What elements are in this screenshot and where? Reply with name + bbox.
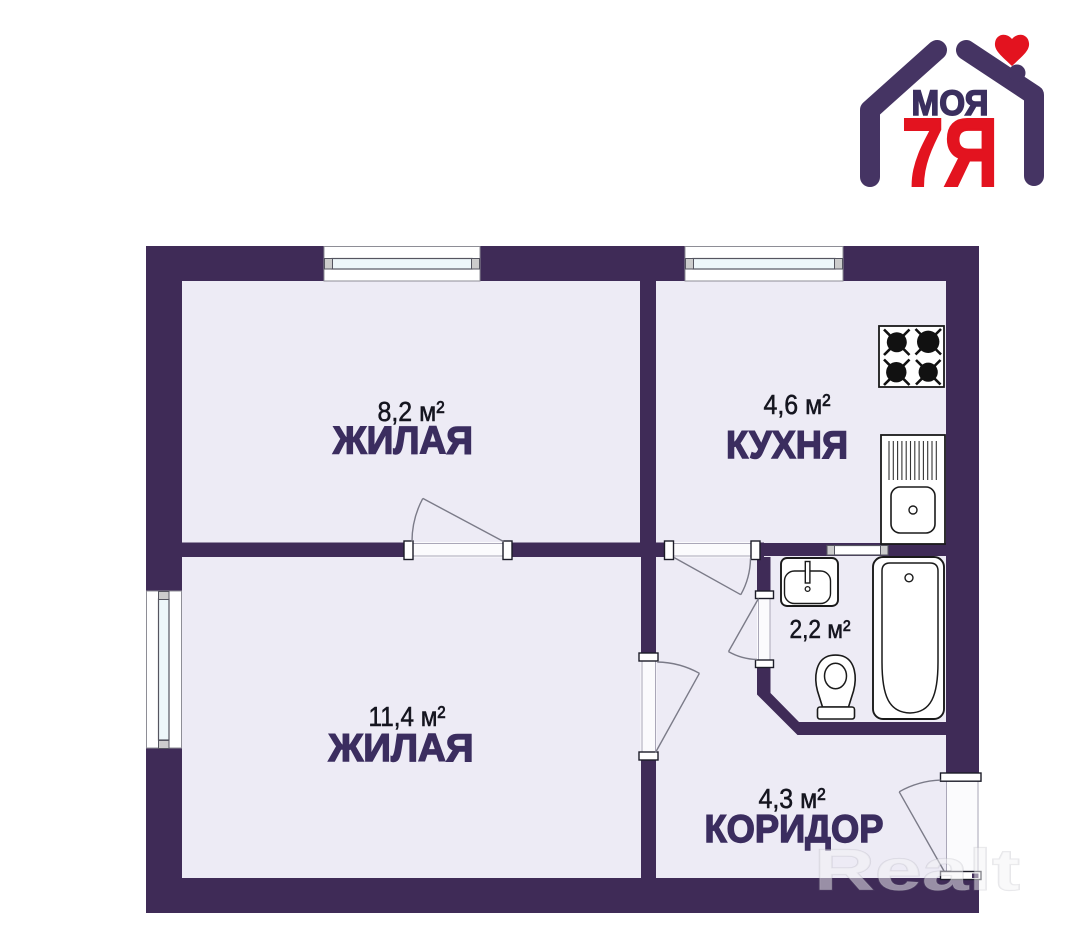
svg-text:ЖИЛАЯ: ЖИЛАЯ <box>332 420 473 463</box>
svg-text:2,2 м²: 2,2 м² <box>790 614 851 644</box>
svg-text:КУХНЯ: КУХНЯ <box>726 424 848 467</box>
svg-text:7Я: 7Я <box>902 98 999 207</box>
svg-text:4,6 м²: 4,6 м² <box>764 389 831 420</box>
svg-text:Realt: Realt <box>814 838 1020 903</box>
svg-text:ЖИЛАЯ: ЖИЛАЯ <box>328 727 474 770</box>
